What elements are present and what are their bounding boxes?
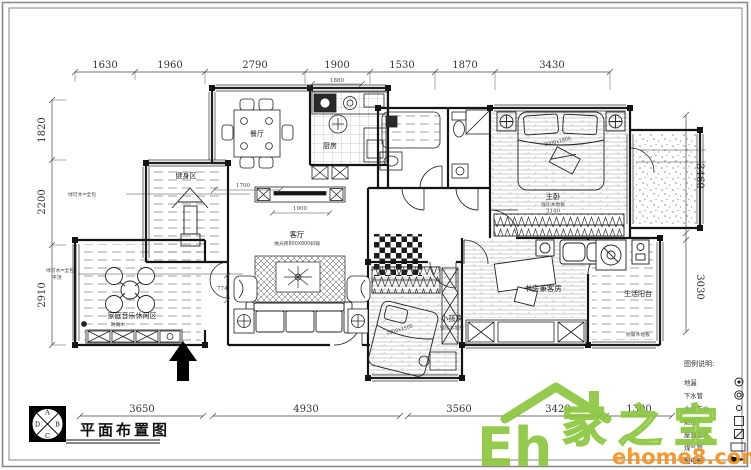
compass-letter-b: B <box>55 421 60 429</box>
fitness-note: 绿可木=全包 <box>68 191 96 198</box>
balcony-floor <box>634 134 696 224</box>
compass-letter-c: C <box>45 432 50 440</box>
master-label: 主卧 <box>546 191 561 201</box>
dim-left-1: 1820 <box>37 117 48 142</box>
logo-eh-text: Eh <box>477 416 552 470</box>
dim-bottom-1: 3650 <box>129 404 154 415</box>
kitchen-label: 厨房 <box>323 141 337 150</box>
legend-item-floordrain: 地漏 <box>684 378 697 387</box>
living-carpet <box>255 256 345 302</box>
drawing-sheet: 1630 1960 2790 1900 1530 1870 3430 1820 … <box>0 0 751 470</box>
floor-plan-canvas: 1630 1960 2790 1900 1530 1870 3430 1820 … <box>0 0 751 470</box>
dim-top-1: 1630 <box>92 60 117 71</box>
dim-top-7: 3430 <box>539 60 564 71</box>
kitchen-dim-1880: 1880 <box>330 78 344 84</box>
legend-title: 图例说明: <box>684 359 714 368</box>
kids-floor-label: 强化木地板 <box>440 324 464 331</box>
leisure-floor <box>79 244 201 341</box>
study-bookcase <box>466 320 586 344</box>
dim-top-2: 1960 <box>157 60 182 71</box>
fitness-label: 健身区 <box>176 171 197 180</box>
dim-bottom-3: 3560 <box>446 404 471 415</box>
master-dim-3140: 3140 <box>546 209 560 215</box>
compass-letter-a: A <box>44 409 50 417</box>
dim-bottom-2: 4930 <box>293 404 318 415</box>
study-label: 书房兼客房 <box>524 283 562 293</box>
fitness-floor <box>150 167 224 257</box>
master-floor-label: 强化木地板 <box>541 201 565 208</box>
living-dim-1700: 1700 <box>236 183 250 189</box>
leisure-floor-label: 防腐木 <box>111 321 126 328</box>
floor-drain-icon-dot <box>737 380 740 383</box>
dim-top-5: 1530 <box>389 60 414 71</box>
kids-label: 小孩房 <box>441 313 464 323</box>
dim-right-2: 3030 <box>694 274 705 299</box>
dim-top-3: 2790 <box>242 60 267 71</box>
dim-left-3: 2910 <box>37 282 48 307</box>
dim-top-4: 1900 <box>324 60 349 71</box>
console-dim-1900: 1900 <box>293 206 307 212</box>
living-floor-label: 抛光砖800X800斜铺 <box>274 240 320 247</box>
living-dim-774: 774 <box>217 286 228 292</box>
leisure-note-2: 平顶 <box>52 275 62 281</box>
sofa <box>246 302 352 333</box>
utility-floor-label: 防腐木地板 <box>626 331 650 338</box>
dining-label: 餐厅 <box>250 129 264 138</box>
logo-url-text: ehome8.com <box>612 445 751 469</box>
legend-item-downpipe: 下水管 <box>684 391 703 400</box>
leisure-note-1: 绿可木=全包 <box>46 267 74 274</box>
living-label: 客厅 <box>290 229 305 239</box>
leisure-label: 家庭音乐休闲区 <box>108 311 157 320</box>
compass-letter-d: D <box>35 421 40 429</box>
sheet-title: 平面布置图 <box>80 421 170 439</box>
utility-label: 生活阳台 <box>624 289 652 298</box>
dim-left-2: 2200 <box>37 189 48 214</box>
dim-top-6: 1870 <box>452 60 477 71</box>
